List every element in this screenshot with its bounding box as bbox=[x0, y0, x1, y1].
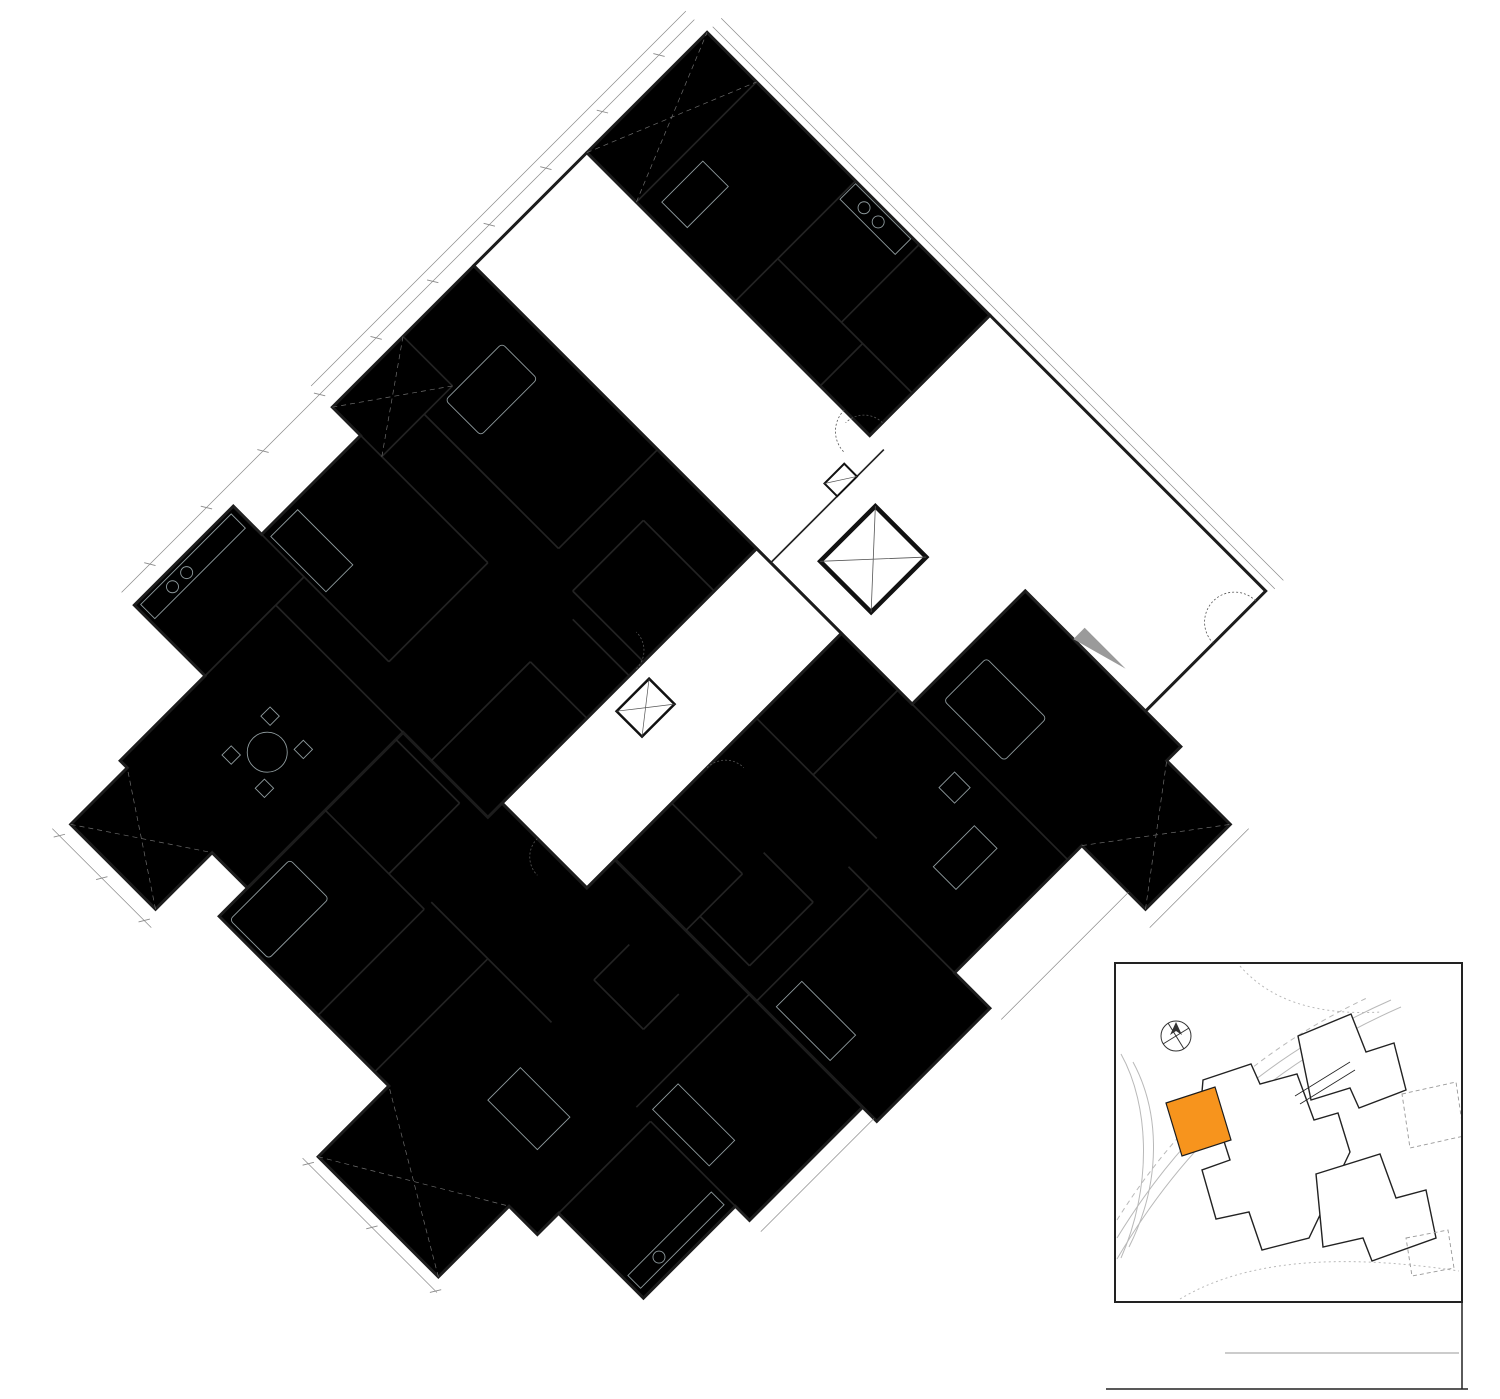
title-block bbox=[1106, 1302, 1468, 1389]
site-plan-inset bbox=[1115, 963, 1464, 1302]
blueprint-drawing bbox=[0, 0, 1500, 1399]
blueprint-page bbox=[0, 0, 1500, 1399]
